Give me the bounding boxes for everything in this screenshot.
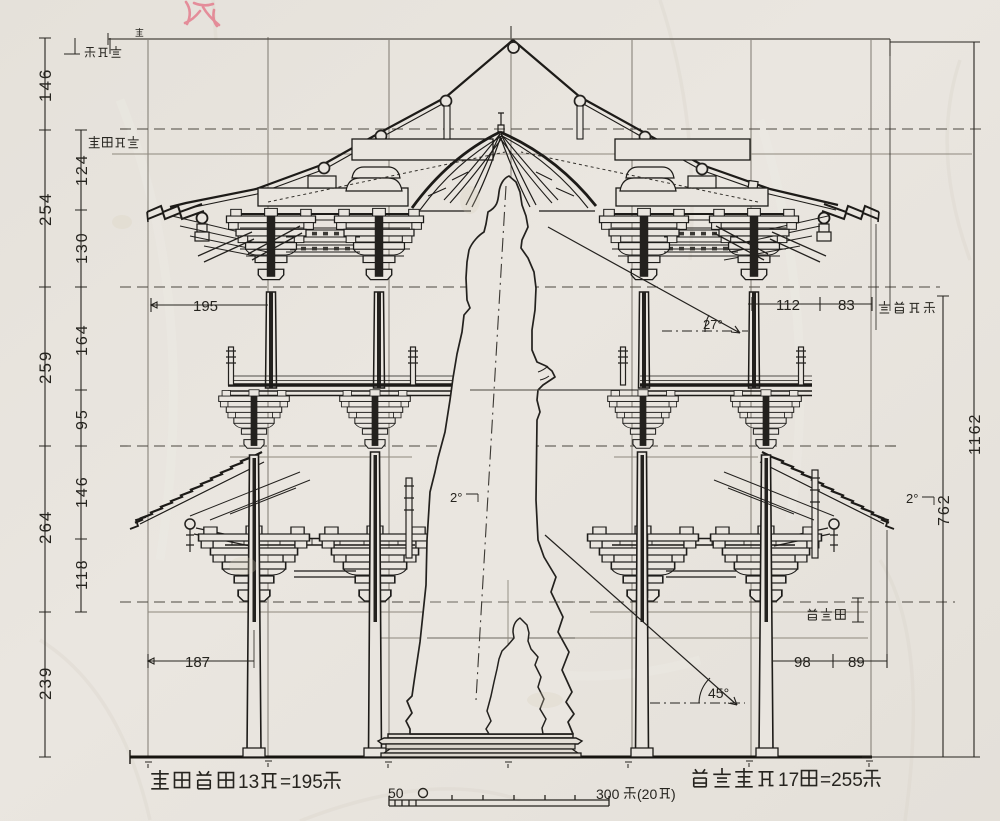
svg-text:164: 164 [74, 323, 91, 356]
svg-text:=255: =255 [820, 770, 863, 791]
svg-text:239: 239 [36, 666, 55, 700]
svg-text:17: 17 [778, 770, 799, 791]
svg-text:2°: 2° [450, 490, 462, 505]
svg-text:50: 50 [388, 785, 404, 801]
svg-text:83: 83 [838, 297, 855, 314]
svg-text:130: 130 [74, 231, 91, 264]
svg-text:95: 95 [74, 408, 91, 430]
svg-text:124: 124 [74, 153, 91, 186]
svg-text:45°: 45° [708, 685, 729, 701]
svg-text:=195: =195 [280, 772, 323, 793]
svg-text:2°: 2° [906, 491, 918, 506]
svg-text:98: 98 [794, 654, 811, 671]
svg-text:300: 300 [596, 786, 620, 802]
svg-text:1162: 1162 [967, 413, 984, 455]
svg-text:118: 118 [74, 558, 91, 590]
svg-text:762: 762 [936, 493, 953, 526]
svg-text:27°: 27° [703, 317, 723, 332]
svg-text:187: 187 [185, 654, 210, 671]
svg-text:13: 13 [238, 772, 259, 793]
svg-text:146: 146 [36, 68, 55, 102]
svg-text:146: 146 [74, 475, 91, 508]
svg-text:254: 254 [36, 192, 55, 226]
svg-text:112: 112 [776, 297, 800, 314]
svg-text:259: 259 [36, 350, 55, 384]
svg-text:(20: (20 [637, 786, 657, 802]
svg-text:264: 264 [36, 510, 55, 544]
svg-text:): ) [671, 786, 676, 802]
svg-text:195: 195 [193, 298, 218, 315]
svg-text:89: 89 [848, 654, 865, 671]
